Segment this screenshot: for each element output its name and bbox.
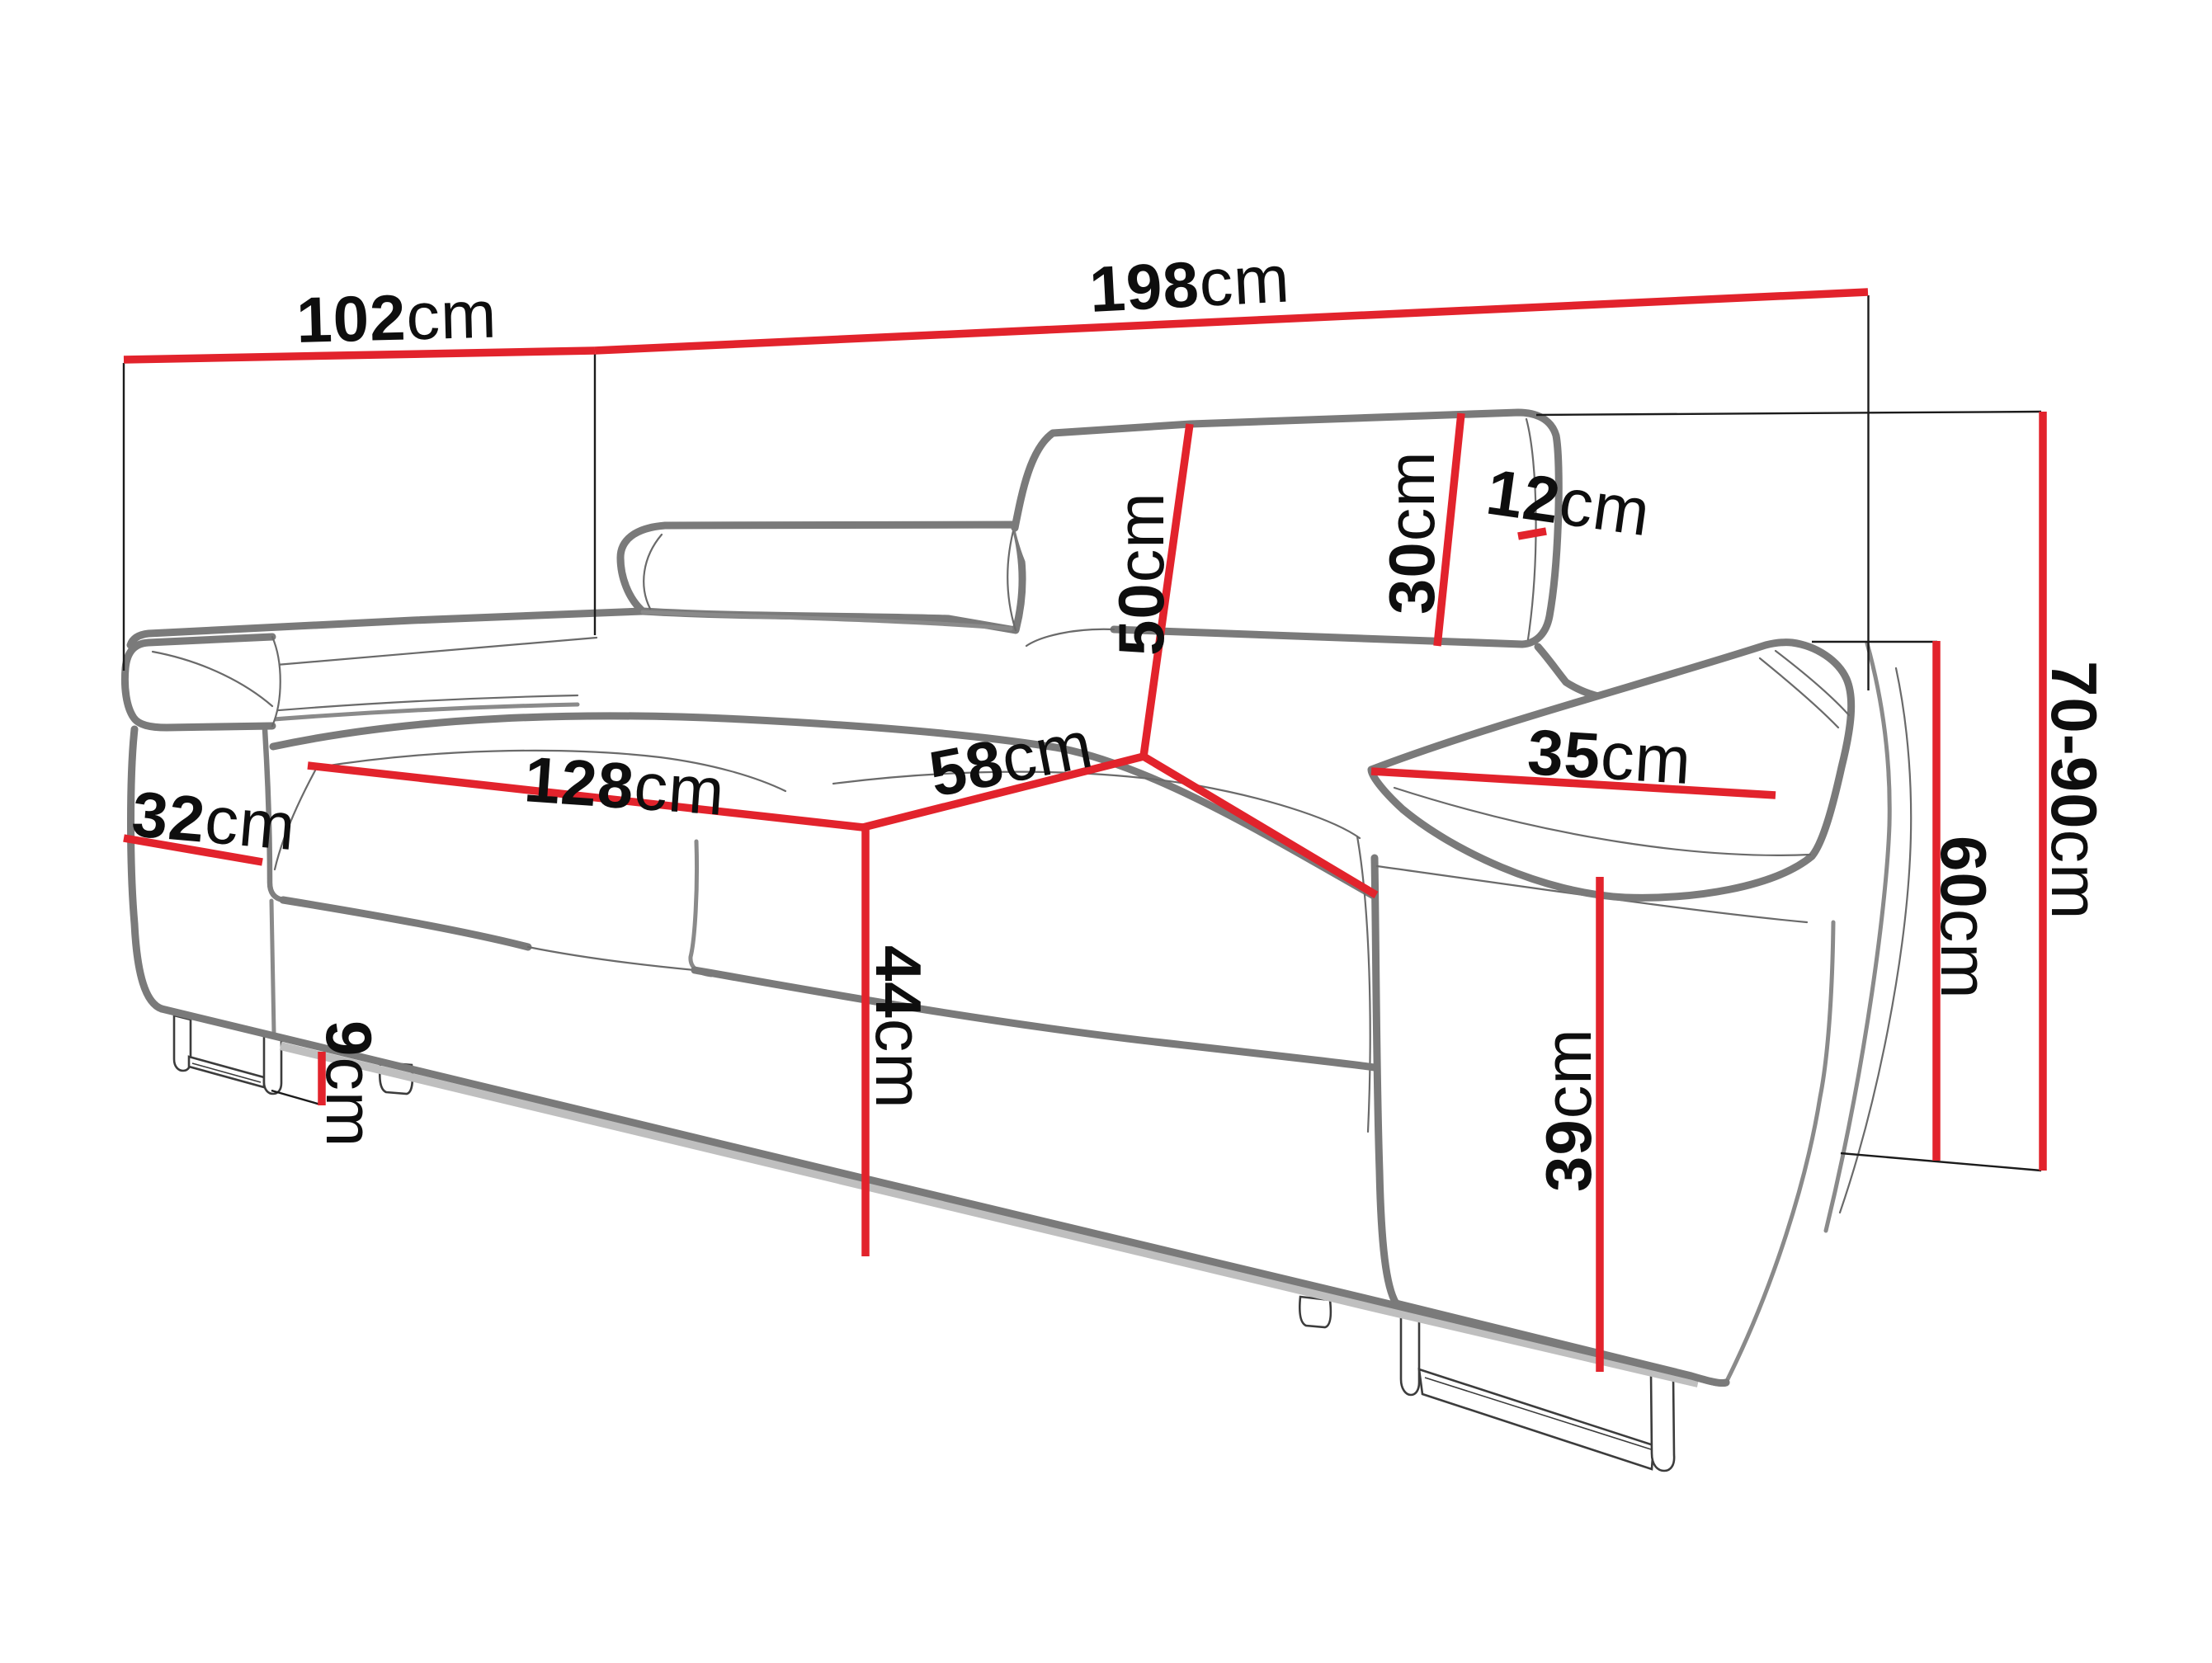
svg-text:102cm: 102cm xyxy=(295,278,498,357)
svg-text:32cm: 32cm xyxy=(129,776,299,864)
svg-text:9cm: 9cm xyxy=(312,1020,386,1147)
svg-text:198cm: 198cm xyxy=(1087,242,1292,327)
svg-text:70-90cm: 70-90cm xyxy=(2037,661,2111,920)
svg-text:30cm: 30cm xyxy=(1375,450,1449,615)
svg-text:60cm: 60cm xyxy=(1927,836,2001,1000)
svg-text:128cm: 128cm xyxy=(522,742,728,830)
svg-text:44cm: 44cm xyxy=(861,945,936,1109)
svg-text:39cm: 39cm xyxy=(1531,1028,1606,1192)
svg-text:50cm: 50cm xyxy=(1104,492,1178,656)
svg-text:35cm: 35cm xyxy=(1526,714,1694,799)
